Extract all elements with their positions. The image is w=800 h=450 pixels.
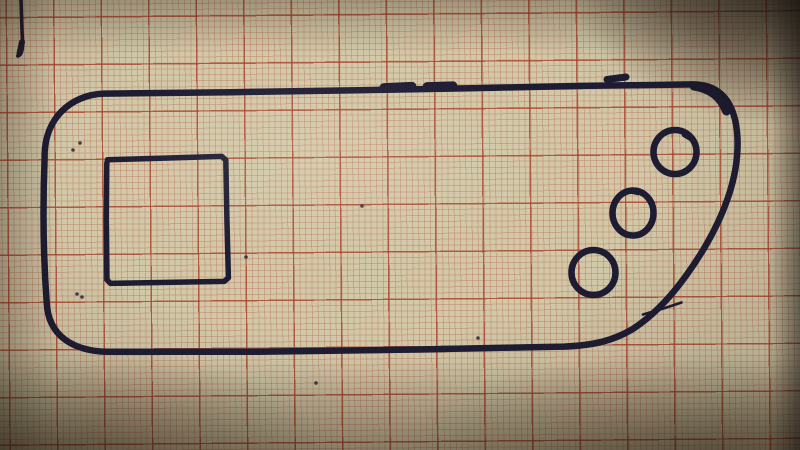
corner-overdraw-top-right: [694, 86, 727, 111]
top-edge-smudge: [607, 77, 626, 80]
paper-speck: [80, 295, 84, 299]
paper-speck: [244, 255, 248, 259]
paper-speck: [71, 148, 75, 152]
top-edge-overdraw-a: [384, 86, 412, 87]
hole-circle: [572, 250, 616, 295]
paper-speck: [314, 381, 318, 385]
paper-speck: [476, 336, 480, 340]
hole-circles: [572, 130, 697, 295]
device-outline-shape: [44, 84, 738, 351]
stray-stroke-hook: [20, 42, 23, 54]
sketch-drawing: [0, 0, 800, 450]
hole-circle: [613, 191, 654, 236]
graph-paper-photo: [0, 0, 800, 450]
square-cutout-shape: [106, 156, 228, 283]
paper-speck: [360, 204, 364, 208]
paper-speck: [75, 292, 79, 296]
top-edge-overdraw-b: [427, 86, 453, 87]
paper-speck: [78, 141, 82, 145]
circle-start-blob-middle: [629, 192, 639, 194]
